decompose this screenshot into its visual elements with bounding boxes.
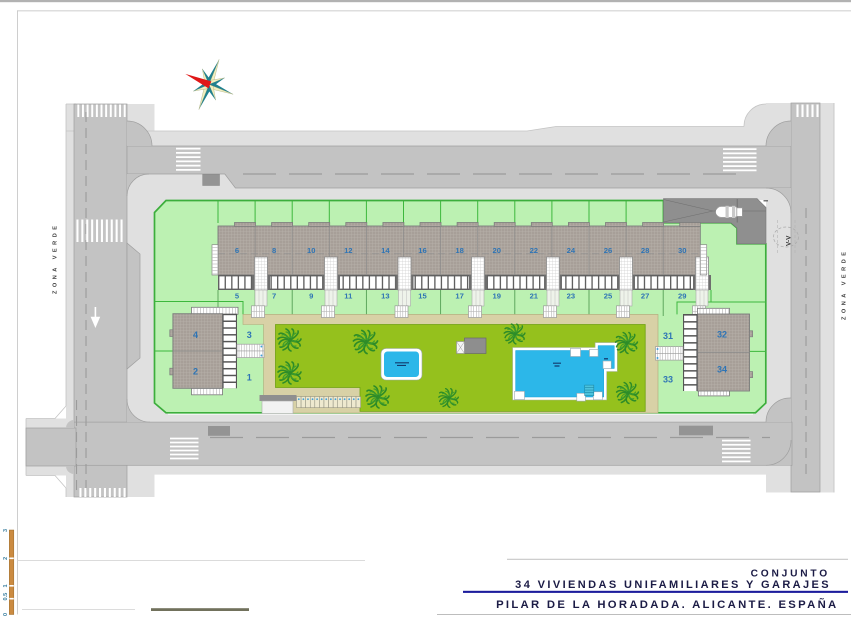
svg-text:CONJUNTO: CONJUNTO <box>751 569 830 580</box>
svg-text:0: 0 <box>3 613 9 616</box>
svg-text:21: 21 <box>530 292 539 301</box>
svg-text:34: 34 <box>717 365 727 375</box>
svg-text:33: 33 <box>663 374 673 384</box>
svg-text:PILAR DE LA HORADADA. ALICANTE: PILAR DE LA HORADADA. ALICANTE. ESPAÑA <box>496 598 838 611</box>
svg-text:22: 22 <box>530 246 538 255</box>
svg-text:18: 18 <box>455 246 463 255</box>
svg-text:24: 24 <box>567 246 576 255</box>
svg-text:25: 25 <box>604 292 613 301</box>
svg-text:6: 6 <box>235 246 239 255</box>
svg-text:1: 1 <box>3 584 9 587</box>
svg-text:9: 9 <box>309 292 313 301</box>
svg-text:8: 8 <box>272 246 276 255</box>
svg-text:0.5: 0.5 <box>3 593 9 601</box>
svg-text:3: 3 <box>3 529 9 532</box>
svg-text:30: 30 <box>678 246 686 255</box>
svg-text:12: 12 <box>344 246 352 255</box>
svg-text:ZONA VERDE: ZONA VERDE <box>53 223 59 294</box>
svg-text:V-V: V-V <box>786 235 793 246</box>
svg-text:ZONA VERDE: ZONA VERDE <box>842 249 848 320</box>
svg-text:32: 32 <box>717 330 727 340</box>
svg-text:10: 10 <box>307 246 315 255</box>
svg-text:34 VIVIENDAS UNIFAMILIARES Y G: 34 VIVIENDAS UNIFAMILIARES Y GARAJES <box>515 579 831 591</box>
svg-text:31: 31 <box>663 331 673 341</box>
svg-text:26: 26 <box>604 246 612 255</box>
svg-text:3: 3 <box>247 330 252 340</box>
svg-text:11: 11 <box>344 292 353 301</box>
svg-text:1: 1 <box>247 372 252 382</box>
svg-text:27: 27 <box>641 292 649 301</box>
svg-text:14: 14 <box>381 246 390 255</box>
svg-text:4: 4 <box>193 330 198 340</box>
svg-text:20: 20 <box>492 246 500 255</box>
svg-text:16: 16 <box>418 246 426 255</box>
svg-text:28: 28 <box>641 246 649 255</box>
svg-text:19: 19 <box>492 292 500 301</box>
svg-text:17: 17 <box>455 292 463 301</box>
svg-text:15: 15 <box>418 292 427 301</box>
svg-text:7: 7 <box>272 292 276 301</box>
svg-text:29: 29 <box>678 292 686 301</box>
svg-text:2: 2 <box>3 557 9 560</box>
svg-text:2: 2 <box>193 367 198 377</box>
svg-text:23: 23 <box>567 292 575 301</box>
svg-text:13: 13 <box>381 292 389 301</box>
